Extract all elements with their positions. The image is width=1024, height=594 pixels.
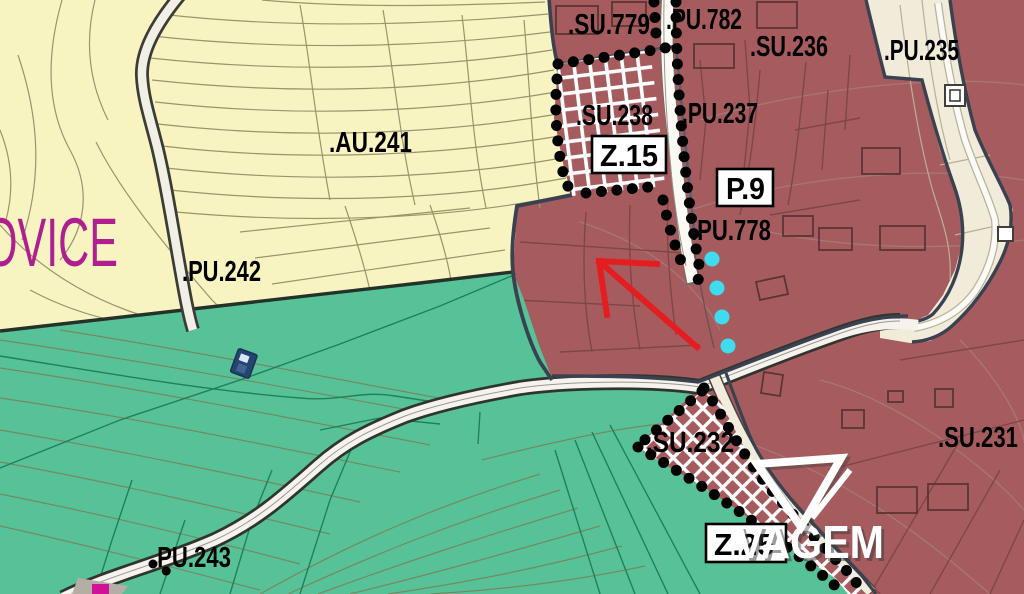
svg-text:.SU.236: .SU.236: [750, 31, 828, 63]
svg-text:.PU.243: .PU.243: [151, 542, 231, 574]
svg-text:Z.15: Z.15: [600, 138, 658, 173]
svg-text:.SU.238: .SU.238: [576, 100, 653, 132]
svg-text:.SU.779: .SU.779: [568, 9, 650, 41]
svg-text:.PU.778: .PU.778: [691, 215, 771, 247]
svg-text:OVICE: OVICE: [0, 204, 118, 281]
svg-text:.SU.232: .SU.232: [646, 427, 734, 459]
svg-text:.PU.237: .PU.237: [682, 98, 758, 130]
svg-text:.SU.231: .SU.231: [938, 422, 1018, 454]
svg-text:.PU.242: .PU.242: [182, 256, 261, 288]
svg-text:.AU.241: .AU.241: [329, 127, 412, 159]
svg-text:.PU.235: .PU.235: [884, 35, 959, 67]
svg-text:P.9: P.9: [726, 171, 765, 206]
svg-text:.PU.782: .PU.782: [666, 4, 742, 36]
